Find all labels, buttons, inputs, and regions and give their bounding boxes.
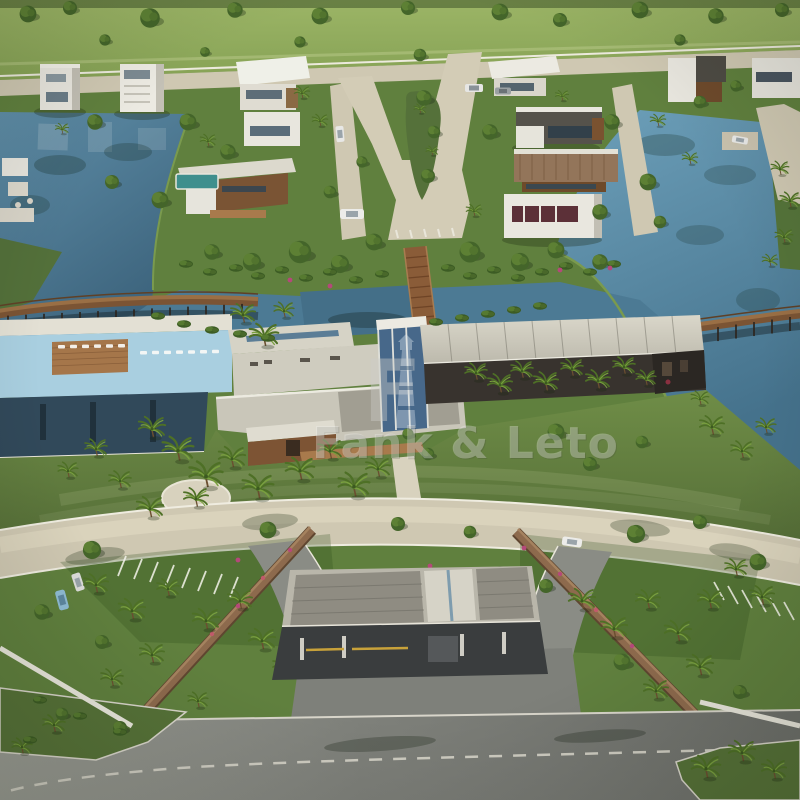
render-canvas: F Fank & Leto Fank & Leto — [0, 0, 800, 800]
vignette — [0, 0, 800, 800]
aerial-render-image: F Fank & Leto Fank & Leto — [0, 0, 800, 800]
